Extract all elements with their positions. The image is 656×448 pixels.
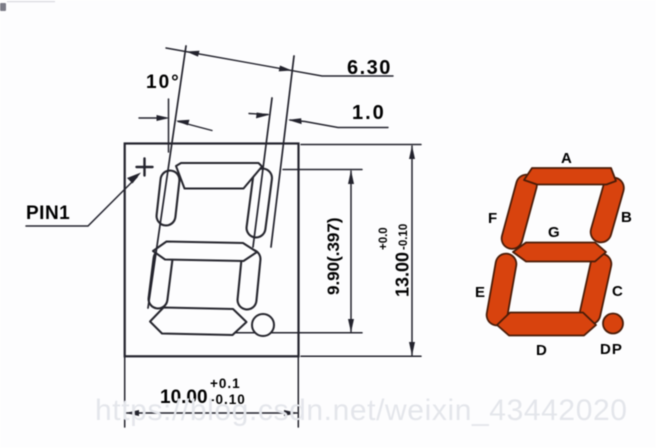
svg-text:+0.0: +0.0 bbox=[378, 227, 390, 250]
svg-text:F: F bbox=[488, 210, 497, 227]
svg-text:https://blog.csdn.net/weixin_4: https://blog.csdn.net/weixin_43442020 bbox=[95, 394, 628, 427]
svg-text:G: G bbox=[548, 224, 560, 241]
svg-text:6.30: 6.30 bbox=[347, 57, 392, 79]
svg-text:9.90(.397): 9.90(.397) bbox=[324, 218, 343, 296]
svg-text:13.00: 13.00 bbox=[393, 252, 413, 297]
svg-text:PIN1: PIN1 bbox=[26, 203, 70, 224]
svg-text:-0.10: -0.10 bbox=[398, 224, 410, 250]
svg-text:B: B bbox=[621, 209, 632, 226]
svg-text:DP: DP bbox=[600, 341, 623, 358]
svg-text:E: E bbox=[475, 284, 485, 301]
svg-text:C: C bbox=[612, 283, 623, 300]
svg-text:+0.1: +0.1 bbox=[210, 376, 241, 391]
svg-text:D: D bbox=[536, 342, 547, 359]
svg-text:1.0: 1.0 bbox=[352, 102, 386, 124]
svg-text:10°: 10° bbox=[146, 72, 181, 93]
svg-text:A: A bbox=[561, 150, 572, 167]
